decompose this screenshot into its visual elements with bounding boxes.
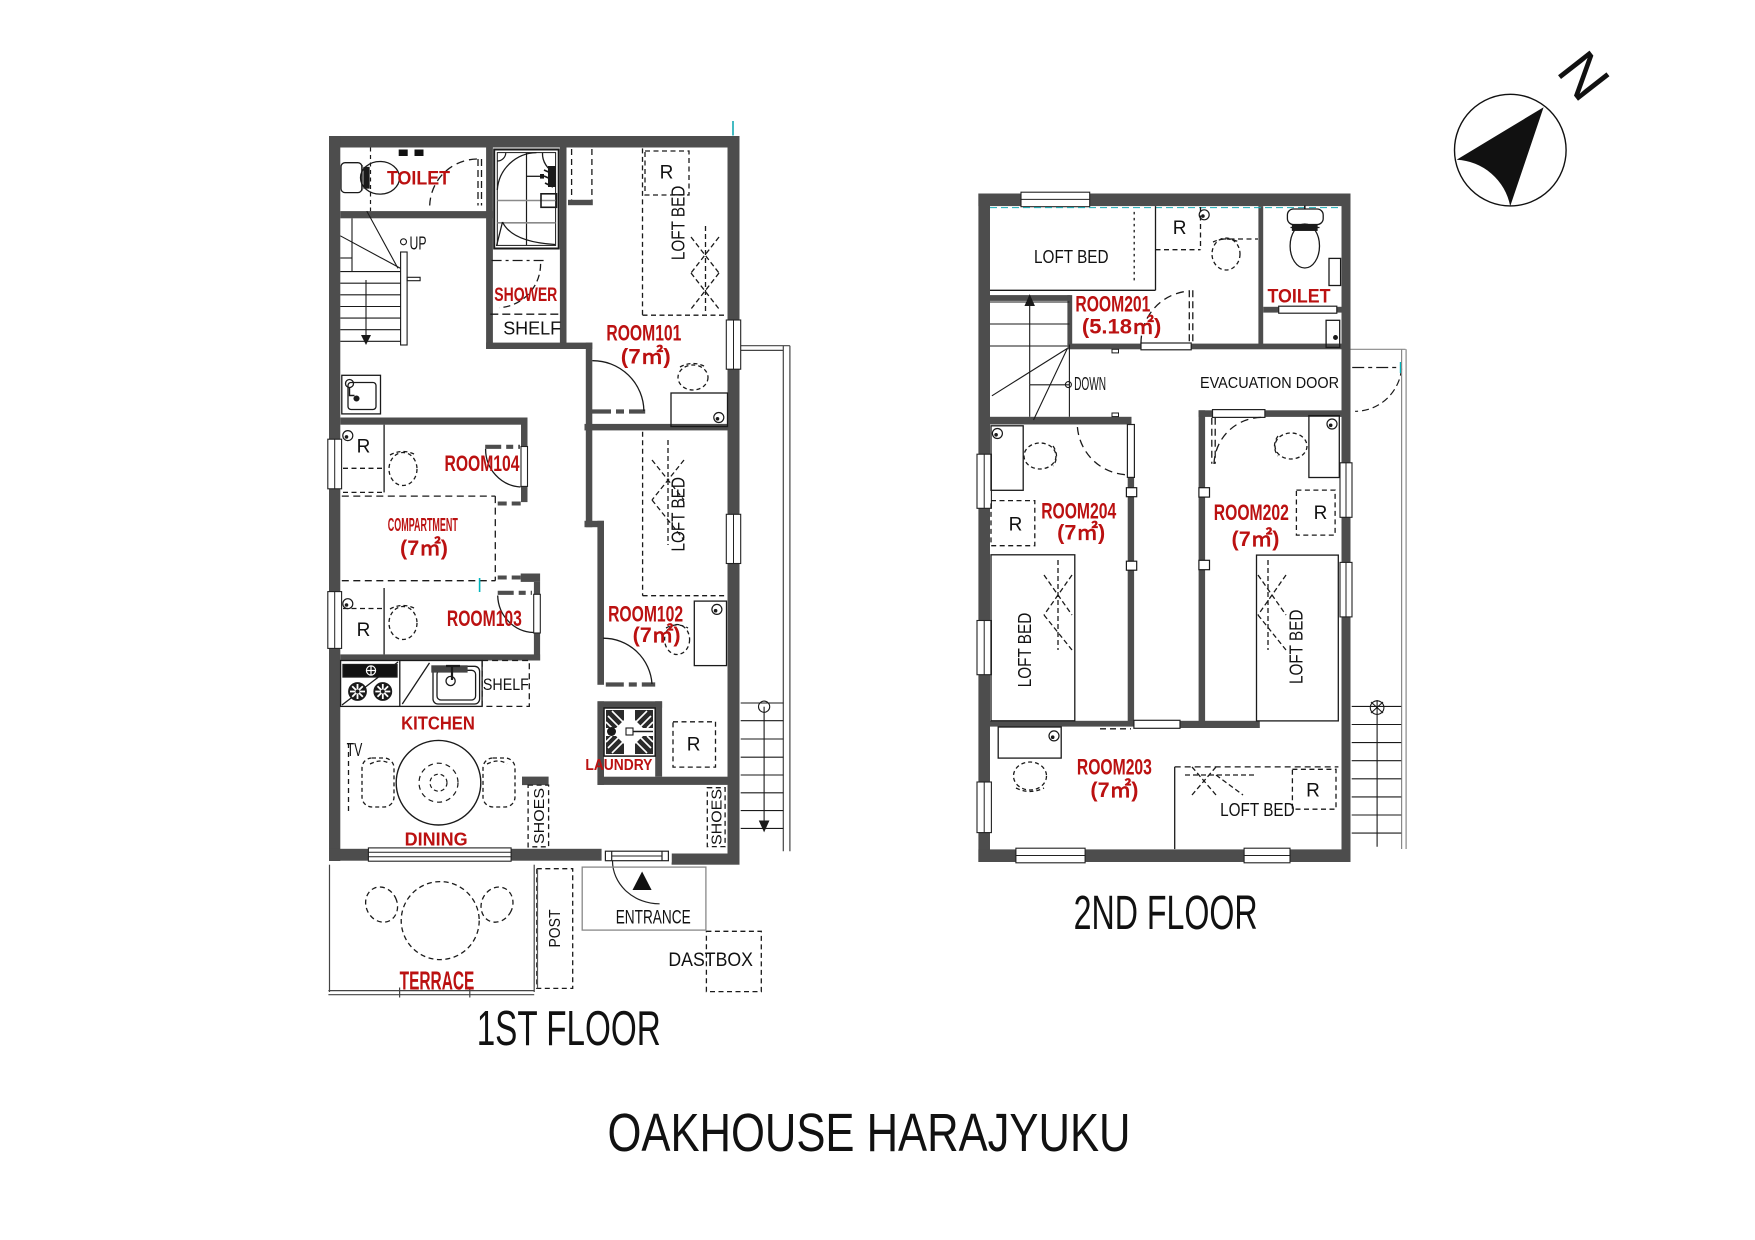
svg-text:SHOWER: SHOWER [494, 285, 557, 306]
svg-text:1ST FLOOR: 1ST FLOOR [477, 1002, 661, 1056]
svg-text:LAUNDRY: LAUNDRY [585, 757, 652, 774]
svg-text:TOILET: TOILET [1268, 287, 1331, 308]
svg-text:SHOES: SHOES [531, 788, 548, 844]
svg-text:KITCHEN: KITCHEN [401, 713, 475, 733]
svg-text:COMPARTMENT: COMPARTMENT [388, 515, 458, 535]
svg-text:ROOM101: ROOM101 [606, 321, 681, 346]
svg-text:R: R [660, 163, 674, 184]
svg-text:SHELF: SHELF [483, 675, 529, 694]
svg-text:ROOM104: ROOM104 [445, 451, 521, 476]
svg-text:ROOM202: ROOM202 [1214, 500, 1289, 525]
svg-text:SHELF: SHELF [503, 319, 561, 339]
svg-text:UP: UP [410, 234, 427, 254]
svg-text:SHOES: SHOES [709, 789, 726, 845]
svg-text:LOFT BED: LOFT BED [1220, 800, 1295, 820]
svg-text:ROOM201: ROOM201 [1075, 292, 1150, 317]
svg-text:R: R [1173, 218, 1187, 239]
svg-text:(7㎡): (7㎡) [1057, 520, 1105, 544]
svg-text:OAKHOUSE HARAJYUKU: OAKHOUSE HARAJYUKU [608, 1103, 1131, 1163]
svg-text:R: R [687, 735, 701, 756]
svg-text:ROOM103: ROOM103 [447, 606, 522, 631]
svg-text:POST: POST [547, 909, 564, 947]
svg-text:(7㎡): (7㎡) [400, 536, 448, 560]
svg-text:2ND FLOOR: 2ND FLOOR [1074, 887, 1258, 940]
svg-text:DOWN: DOWN [1074, 374, 1106, 394]
svg-text:ROOM204: ROOM204 [1041, 499, 1117, 524]
svg-text:(7㎡): (7㎡) [1232, 527, 1280, 551]
svg-text:TV: TV [347, 740, 363, 760]
svg-text:LOFT BED: LOFT BED [1015, 613, 1035, 688]
svg-text:DASTBOX: DASTBOX [668, 949, 753, 971]
svg-text:TERRACE: TERRACE [400, 966, 475, 996]
svg-text:(5.18㎡): (5.18㎡) [1082, 314, 1161, 338]
svg-text:LOFT BED: LOFT BED [669, 477, 689, 552]
svg-text:TOILET: TOILET [387, 169, 450, 190]
svg-text:R: R [357, 620, 371, 641]
svg-text:LOFT BED: LOFT BED [669, 186, 689, 261]
svg-text:R: R [1306, 781, 1320, 802]
svg-text:(7㎡): (7㎡) [621, 345, 671, 369]
svg-text:LOFT BED: LOFT BED [1034, 247, 1109, 267]
svg-text:DINING: DINING [405, 830, 468, 850]
svg-text:(7㎡): (7㎡) [1090, 778, 1138, 802]
svg-text:LOFT BED: LOFT BED [1287, 610, 1307, 685]
svg-text:EVACUATION DOOR: EVACUATION DOOR [1200, 375, 1339, 392]
svg-text:ROOM102: ROOM102 [608, 601, 683, 626]
svg-text:R: R [1009, 515, 1023, 536]
svg-text:R: R [1314, 503, 1328, 524]
svg-text:R: R [357, 436, 371, 457]
svg-text:(7㎡): (7㎡) [633, 623, 681, 647]
svg-text:ROOM203: ROOM203 [1077, 755, 1152, 780]
svg-text:ENTRANCE: ENTRANCE [616, 908, 691, 929]
